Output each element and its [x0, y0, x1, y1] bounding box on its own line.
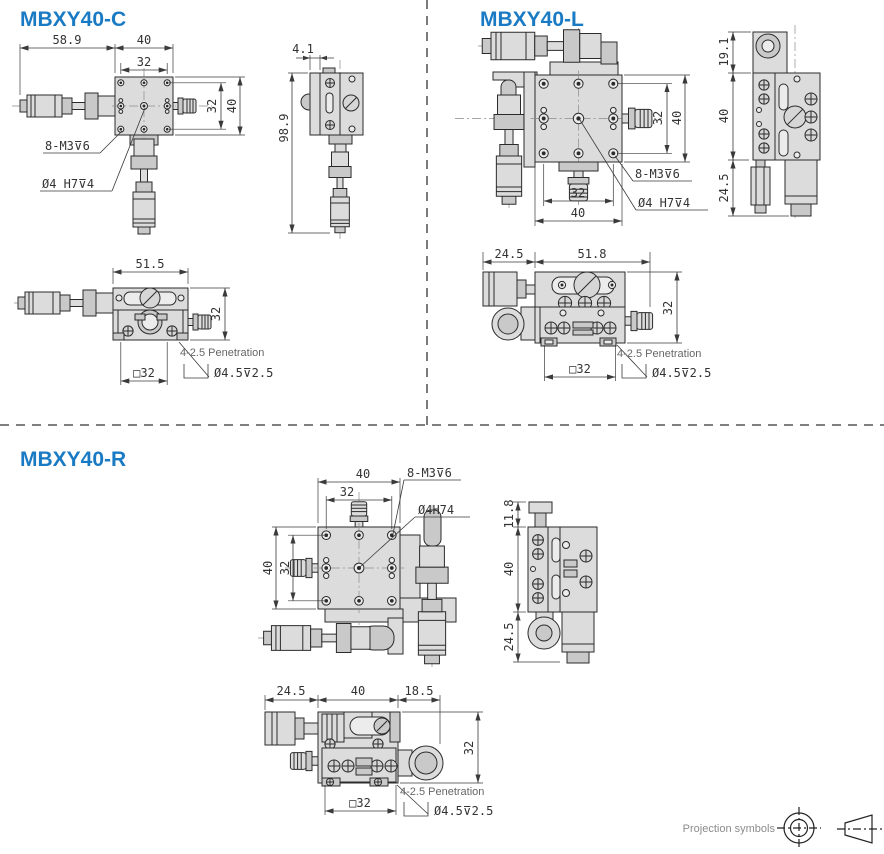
- l-note-penetration: 4-2.5 Penetration: [617, 348, 701, 360]
- r-dim-plate-v: 40: [261, 561, 275, 575]
- l-right-knob: [622, 108, 652, 129]
- c-front-view: 58.9 40 32 32 40 8-M3⊽6 Ø4 H7⊽4: [12, 33, 245, 238]
- l-dim-holes: 32: [571, 186, 585, 200]
- drawing-sheet: MBXY40-C 58.9 40 32: [0, 0, 884, 854]
- projection-symbols-label: Projection symbols: [683, 823, 776, 835]
- c-dim-holes: 32: [137, 55, 151, 69]
- l-dim-holes-v: 32: [651, 111, 665, 125]
- l-bottom-dim-square: □32: [569, 362, 591, 376]
- third-angle-cone-icon: [837, 815, 882, 843]
- c-bottom-knob: [188, 314, 211, 330]
- l-dim-plate: 40: [571, 206, 585, 220]
- c-side-view: 4.1 98.9: [277, 42, 363, 240]
- r-dim-holes-v: 32: [278, 561, 292, 575]
- c-bottom-dim-height: 32: [209, 307, 223, 321]
- c-bottom-micrometer: [18, 290, 113, 316]
- c-bottom-view: 51.5 32 □32 4-2.5 Penetration Ø4.5⊽2.5: [14, 257, 273, 385]
- c-bottom-dim-width: 51.5: [136, 257, 165, 271]
- l-side-dim-mid: 40: [717, 109, 731, 123]
- section-mbxy40-r: MBXY40-R 40: [20, 448, 597, 818]
- r-dim-holes: 32: [340, 485, 354, 499]
- l-bottom-knob-side: [625, 311, 653, 330]
- r-front-view: 40 32 40 32 8-M3⊽6 Ø4H74: [258, 466, 470, 670]
- l-bottom-view: 24.5 51.8 32 □32 4-2.5 Penetration Ø4.5⊽…: [483, 247, 711, 381]
- l-bottom-dim-height: 32: [661, 301, 675, 315]
- l-stage-plate: [531, 71, 627, 167]
- section-title-r: MBXY40-R: [20, 448, 126, 471]
- l-bottom-dim-left: 24.5: [495, 247, 524, 261]
- c-stage-plate: [112, 74, 176, 138]
- r-note-counterbore: Ø4.5⊽2.5: [434, 804, 493, 818]
- l-top-micrometer: [482, 30, 601, 63]
- r-bottom-dim-height: 32: [462, 741, 476, 755]
- r-bottom-dim-mid: 40: [351, 684, 365, 698]
- r-side-dim-top: 11.8: [502, 500, 516, 529]
- l-note-counterbore: Ø4.5⊽2.5: [652, 366, 711, 380]
- l-left-micrometer: [494, 95, 524, 204]
- r-side-dim-bottom: 24.5: [502, 623, 516, 652]
- c-x-micrometer: [20, 93, 115, 119]
- r-dim-plate: 40: [356, 467, 370, 481]
- r-left-knob: [290, 558, 318, 577]
- c-y-micrometer: [131, 139, 157, 234]
- c-side-dim-height: 98.9: [277, 114, 291, 143]
- third-angle-circle-icon: [777, 807, 821, 849]
- c-dim-plate-v: 40: [225, 99, 239, 113]
- r-bottom-dim-left: 24.5: [277, 684, 306, 698]
- r-bottom-micrometer: [264, 623, 370, 652]
- r-note-center: Ø4H74: [418, 503, 454, 517]
- r-bottom-left-knob: [290, 751, 318, 770]
- r-stage-plate: [314, 523, 404, 613]
- r-bottom-view: 24.5 40 18.5 32 □32 4-2.5 Penetration Ø4…: [265, 684, 493, 818]
- c-side-micrometer: [329, 152, 351, 233]
- c-dim-holes-v: 32: [205, 99, 219, 113]
- l-side-dim-top: 19.1: [717, 38, 731, 67]
- c-right-knob: [173, 98, 196, 114]
- c-note-center: Ø4 H7⊽4: [42, 177, 94, 191]
- section-title-l: MBXY40-L: [480, 8, 584, 31]
- l-side-dim-bottom: 24.5: [717, 174, 731, 203]
- c-side-dim-top: 4.1: [292, 42, 314, 56]
- r-side-view: 11.8 40 24.5: [502, 500, 597, 663]
- section-mbxy40-l: MBXY40-L 32: [455, 8, 820, 381]
- r-bottom-dim-right: 18.5: [405, 684, 434, 698]
- l-bottom-dim-width: 51.8: [578, 247, 607, 261]
- r-bottom-dim-square: □32: [349, 796, 371, 810]
- c-bottom-dim-square: □32: [133, 366, 155, 380]
- r-note-penetration: 4-2.5 Penetration: [400, 786, 484, 798]
- l-dim-plate-v: 40: [670, 111, 684, 125]
- l-front-view: 32 40 32 40 8-M3⊽6 Ø4 H7⊽4: [455, 28, 708, 226]
- section-mbxy40-c: MBXY40-C 58.9 40 32: [12, 8, 363, 385]
- l-side-view: 19.1 40 24.5: [717, 25, 820, 218]
- r-note-holes: 8-M3⊽6: [407, 466, 452, 480]
- section-title-c: MBXY40-C: [20, 8, 126, 31]
- c-note-holes: 8-M3⊽6: [45, 139, 90, 153]
- projection-symbols: Projection symbols: [683, 807, 882, 849]
- c-note-penetration: 4-2.5 Penetration: [180, 347, 264, 359]
- c-dim-overall: 58.9: [53, 33, 82, 47]
- c-note-counterbore: Ø4.5⊽2.5: [214, 366, 273, 380]
- l-note-center: Ø4 H7⊽4: [638, 196, 690, 210]
- c-dim-plate: 40: [137, 33, 151, 47]
- l-note-holes: 8-M3⊽6: [635, 167, 680, 181]
- r-side-dim-mid: 40: [502, 562, 516, 576]
